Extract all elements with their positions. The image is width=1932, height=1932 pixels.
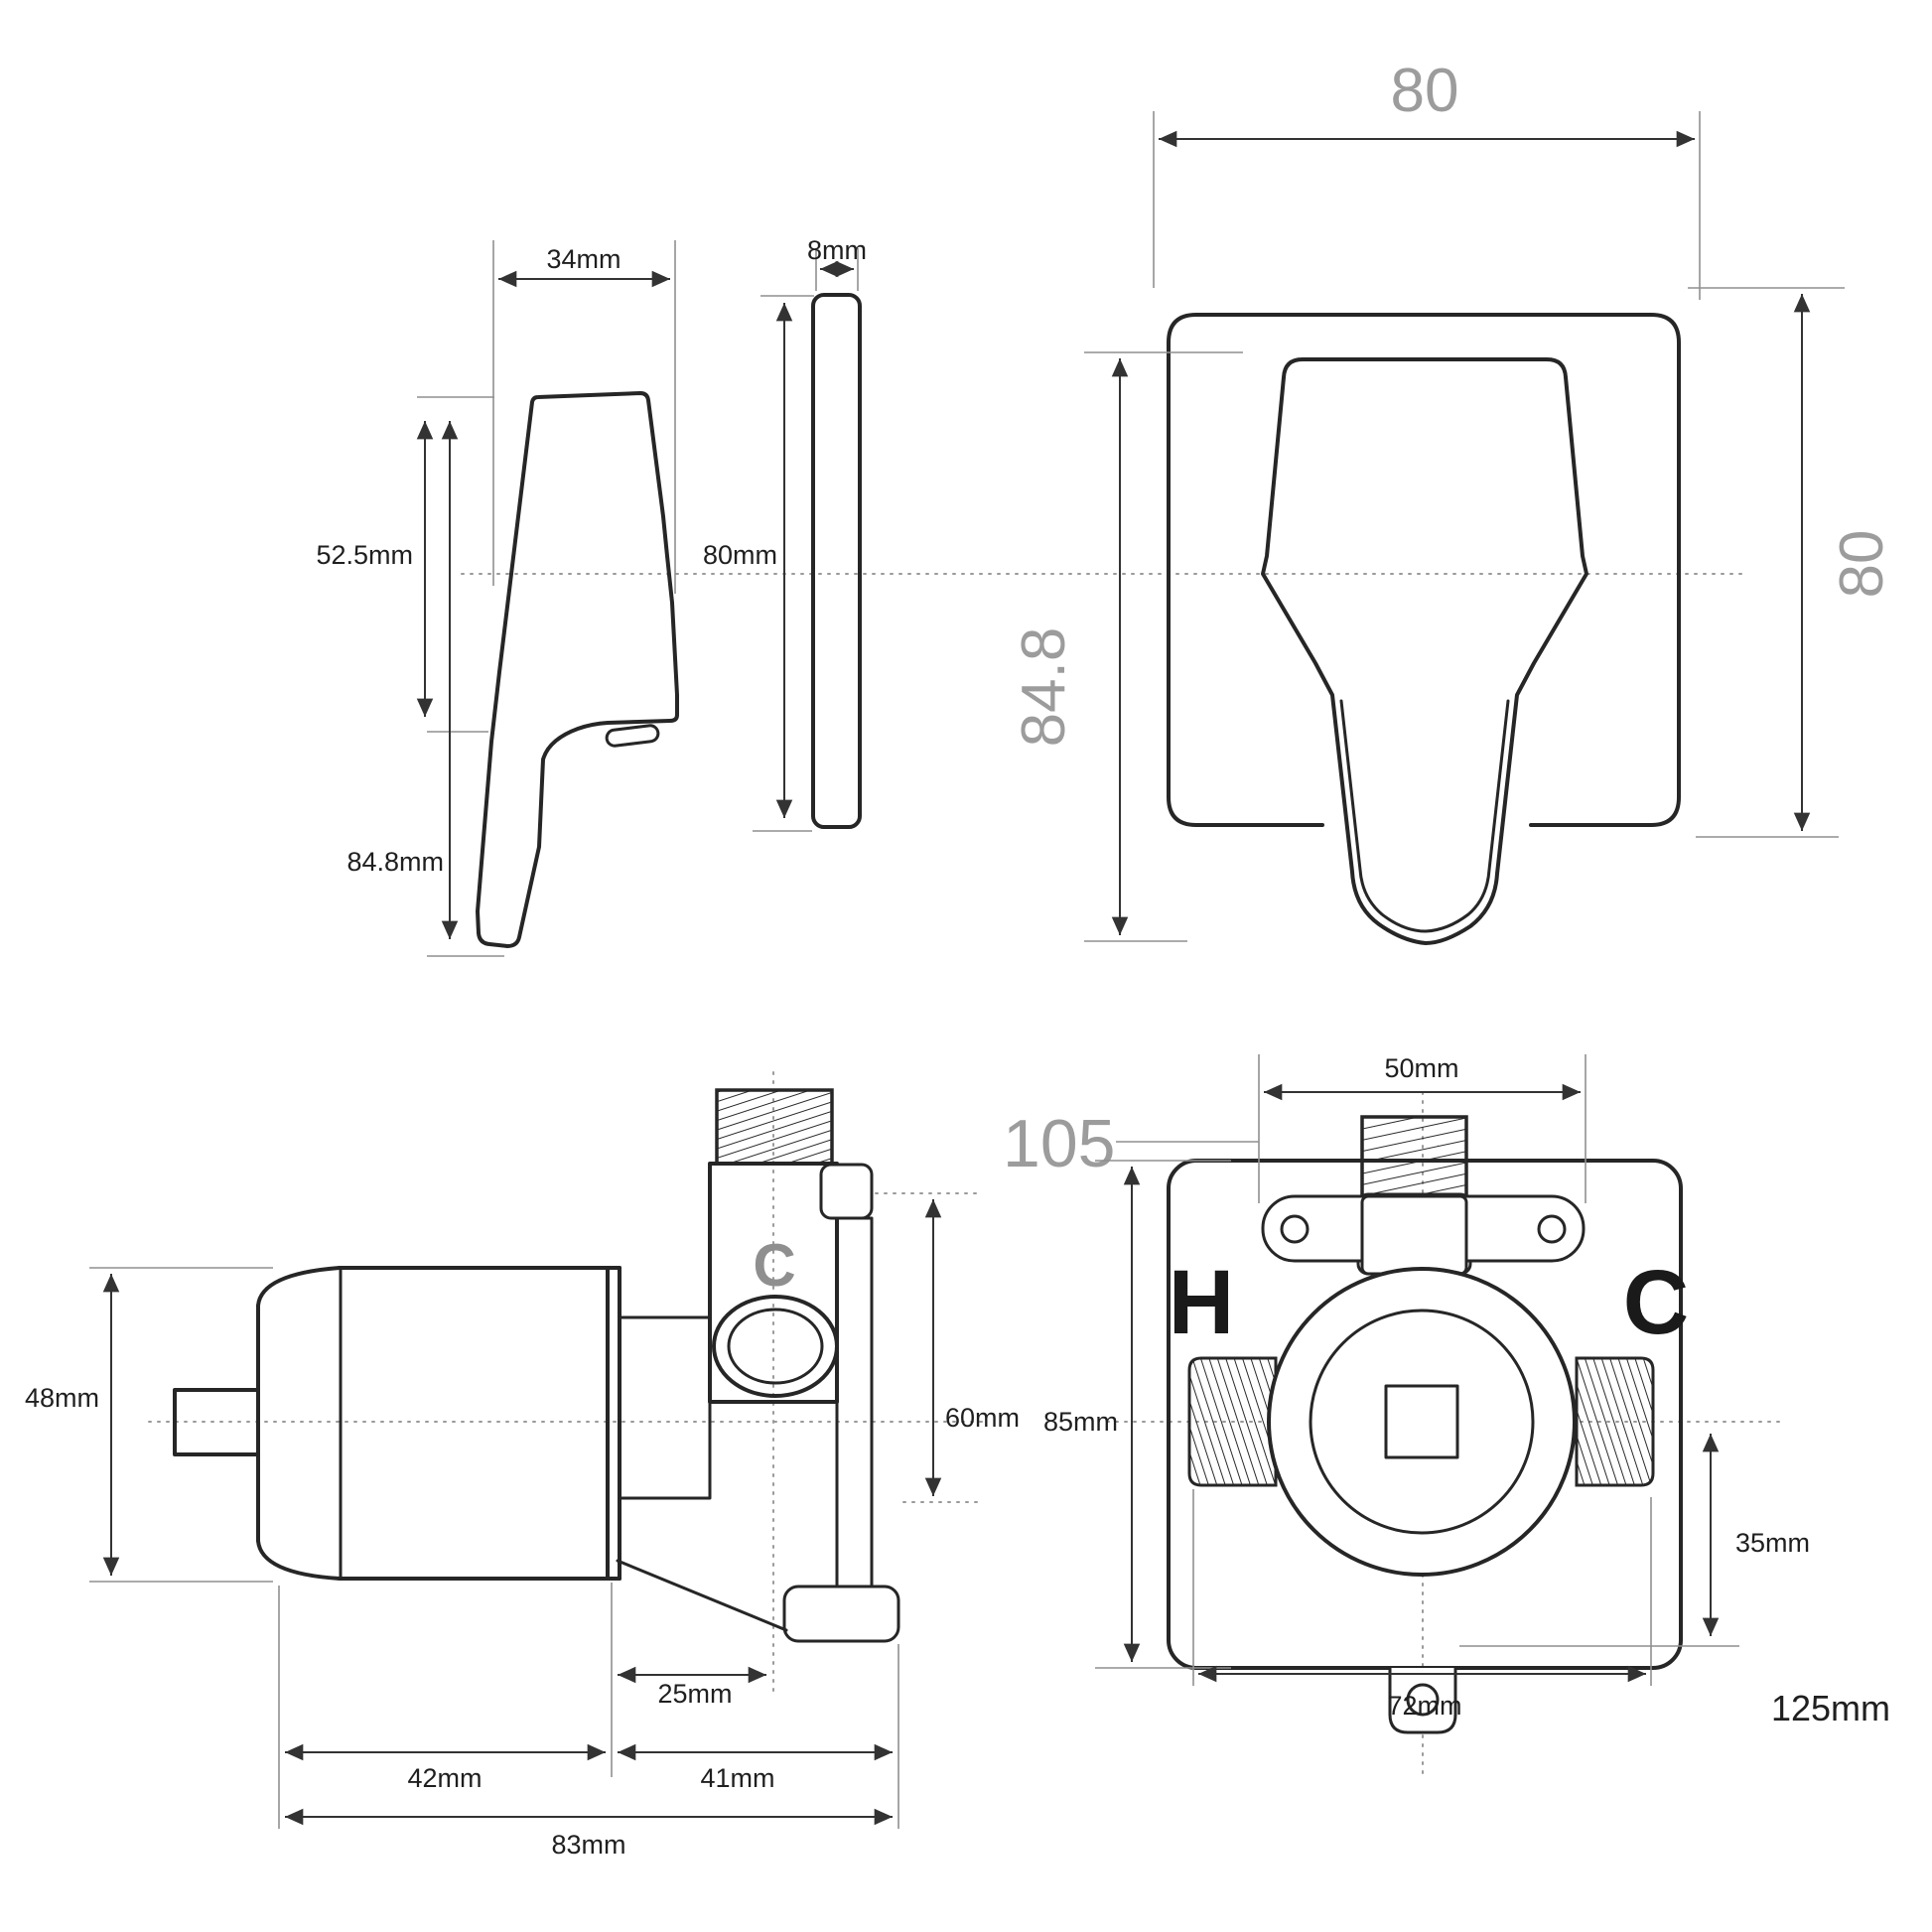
roughin-plate-height-label: 85mm — [1043, 1407, 1118, 1437]
dim-valve-height: 60mm — [876, 1193, 1020, 1502]
valve-diameter-label: 48mm — [25, 1383, 99, 1413]
handle-width-label: 34mm — [546, 244, 621, 274]
trim-height-label: 80 — [1828, 530, 1896, 599]
valve-bracket-strip — [837, 1218, 872, 1588]
trim-handle-inner-line — [1341, 701, 1508, 931]
roughin-thread-span-label: 50mm — [1384, 1053, 1458, 1083]
plate-height-label: 80mm — [703, 540, 777, 570]
cold-label: C — [1623, 1252, 1689, 1353]
trim-front-view: 80 80 84.8 — [1010, 57, 1896, 943]
dim-handle-width: 34mm — [493, 240, 675, 594]
dim-plate-height: 80mm — [703, 296, 814, 831]
dim-valve-diameter: 48mm — [25, 1268, 273, 1582]
hot-label: H — [1169, 1252, 1234, 1353]
handle-slot — [606, 725, 659, 747]
roughin-pipe-neck — [1362, 1196, 1466, 1274]
handle-total-height-label: 84.8mm — [346, 847, 444, 877]
trim-plate-outline — [1169, 315, 1679, 825]
valve-cartridge — [258, 1268, 620, 1579]
valve-total-length-label: 83mm — [551, 1830, 625, 1860]
roughin-valve-circle-outer — [1269, 1269, 1575, 1575]
valve-front-view: H C 50mm 105 85mm 35mm — [1003, 1053, 1890, 1775]
valve-side-tab — [821, 1165, 872, 1218]
dim-trim-width: 80 — [1154, 57, 1700, 300]
technical-drawing: 34mm 52.5mm 84.8mm 8mm — [0, 0, 1932, 1932]
valve-outlet-outer — [714, 1297, 837, 1396]
roughin-top-thread — [1362, 1117, 1466, 1196]
trim-handle-height-label: 84.8 — [1010, 627, 1078, 748]
valve-bracket-wedge — [618, 1561, 786, 1630]
valve-cartridge-length-label: 42mm — [407, 1763, 482, 1793]
dim-handle-upper-height: 52.5mm — [316, 397, 494, 732]
valve-height-label: 60mm — [945, 1403, 1020, 1433]
roughin-plate-width-label: 72mm — [1387, 1691, 1461, 1721]
valve-outlet-offset-label: 25mm — [657, 1679, 732, 1709]
trim-handle-silhouette — [1263, 359, 1587, 943]
roughin-lower-offset-label: 35mm — [1735, 1528, 1810, 1558]
dim-trim-height: 80 — [1688, 288, 1896, 837]
dim-plate-thickness: 8mm — [807, 235, 867, 291]
plate-thickness-label: 8mm — [807, 235, 867, 265]
handle-side-view: 34mm 52.5mm 84.8mm — [316, 240, 677, 956]
plate-side-outline — [813, 295, 860, 827]
plate-side-view: 8mm 80mm — [703, 235, 867, 831]
valve-connector-band — [620, 1317, 710, 1498]
valve-body-length-label: 41mm — [700, 1763, 774, 1793]
valve-outlet-inner — [729, 1310, 822, 1383]
dim-trim-handle-height: 84.8 — [1010, 352, 1243, 941]
handle-upper-height-label: 52.5mm — [316, 540, 413, 570]
valve-side-outlet-letter: C — [753, 1232, 795, 1299]
valve-bracket-foot — [784, 1587, 898, 1641]
dim-valve-outlet-offset: 25mm — [618, 1675, 766, 1709]
roughin-overall-height-label: 105 — [1003, 1106, 1115, 1181]
roughin-overall-width-label: 125mm — [1771, 1688, 1890, 1728]
drawing-page: 34mm 52.5mm 84.8mm 8mm — [0, 0, 1932, 1932]
roughin-left-thread — [1189, 1358, 1276, 1485]
handle-profile-outline — [478, 393, 677, 946]
valve-side-view: C 48mm 60mm 25mm — [25, 1072, 1020, 1860]
valve-top-thread — [717, 1090, 832, 1164]
trim-width-label: 80 — [1391, 57, 1459, 125]
roughin-right-thread — [1577, 1358, 1653, 1485]
